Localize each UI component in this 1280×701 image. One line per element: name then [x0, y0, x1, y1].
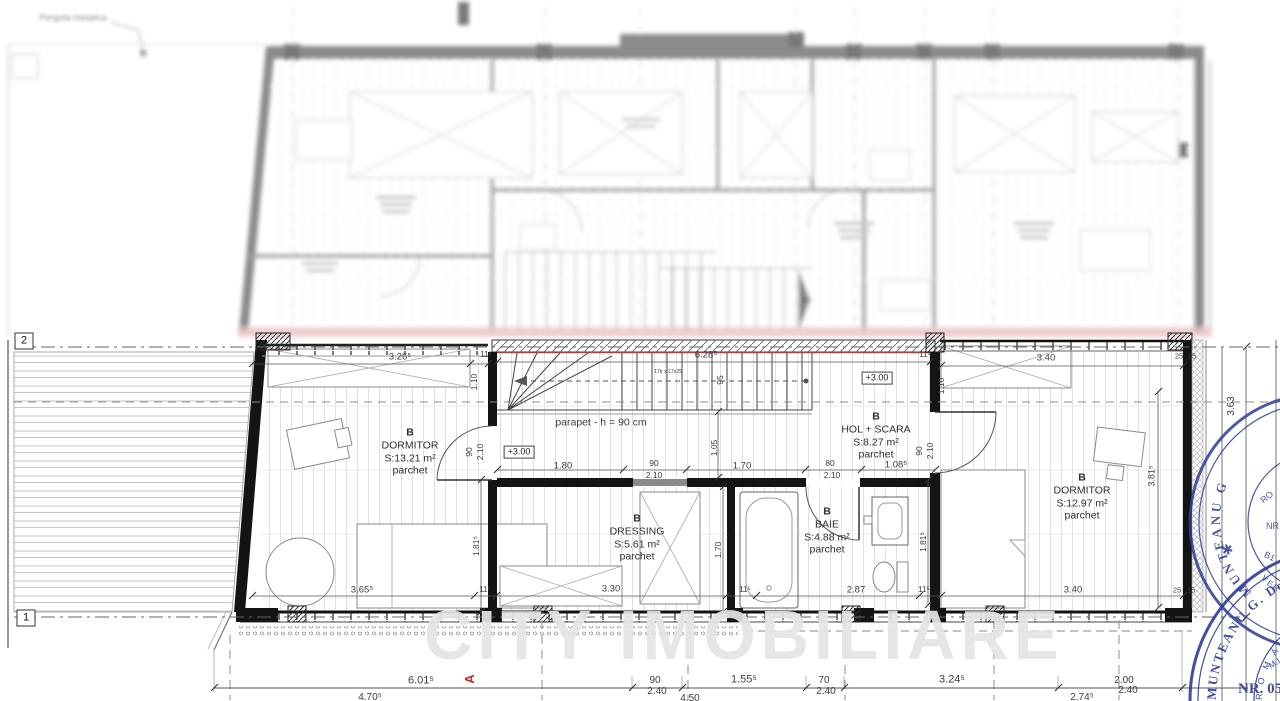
stamp1-line3: B1: [1263, 549, 1277, 563]
stamp1-line2: NR.: [1266, 521, 1280, 531]
stamp-verifier: MUNTEANU G VERIFICAT ✱ RO NR. B1: [1190, 394, 1280, 650]
stamp1-line1: RO: [1258, 489, 1275, 505]
notary-stamps: MUNTEANU G VERIFICAT ✱ RO NR. B1 MUNTEAN…: [0, 0, 1280, 701]
stamp2-number: NR. 05: [1238, 681, 1280, 697]
floorplan-page: Pergola metalica parapet - h = 90 cm +3.…: [0, 0, 1280, 701]
